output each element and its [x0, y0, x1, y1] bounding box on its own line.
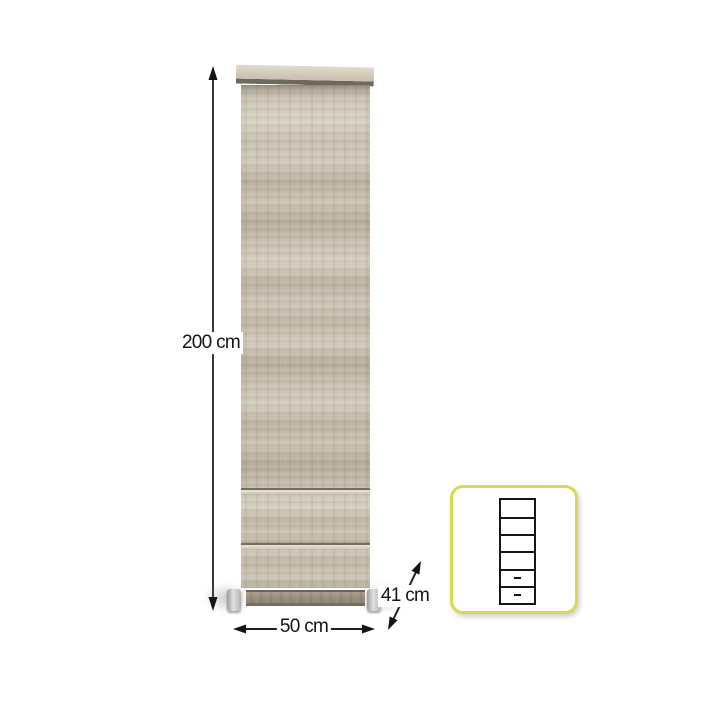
schematic-drawer: [501, 569, 534, 585]
height-dimension-label: 200 cm: [179, 332, 243, 354]
width-dimension-label: 50 cm: [277, 616, 331, 638]
schematic-shelf: [501, 551, 534, 569]
cabinet-drawer-1: [241, 494, 370, 543]
arrow-right-head-icon: [362, 625, 375, 634]
drawer-handle-mark: [514, 577, 521, 579]
arrow-up-head-icon: [209, 66, 218, 80]
arrow-left-head-icon: [233, 625, 246, 634]
cabinet-front: [241, 85, 370, 588]
product-dimension-image: 200 cm 50 cm 41 cm: [0, 0, 720, 720]
schematic-drawer: [501, 586, 534, 603]
cabinet-drawer-2: [241, 549, 370, 588]
schematic-shelf: [501, 517, 534, 534]
cabinet-plinth: [246, 590, 365, 606]
cabinet-door: [241, 85, 370, 488]
arrow-down-left-head-icon: [388, 616, 398, 630]
arrow-up-right-head-icon: [412, 561, 422, 575]
cabinet-top-panel: [236, 65, 374, 87]
drawer-handle-mark: [514, 594, 521, 596]
schematic-shelf: [501, 500, 534, 517]
schematic-shelf: [501, 534, 534, 552]
cabinet-schematic: [499, 498, 536, 605]
schematic-thumbnail-card[interactable]: [450, 485, 578, 614]
depth-dimension-label: 41 cm: [378, 585, 432, 607]
cabinet-foot-left: [227, 589, 241, 611]
